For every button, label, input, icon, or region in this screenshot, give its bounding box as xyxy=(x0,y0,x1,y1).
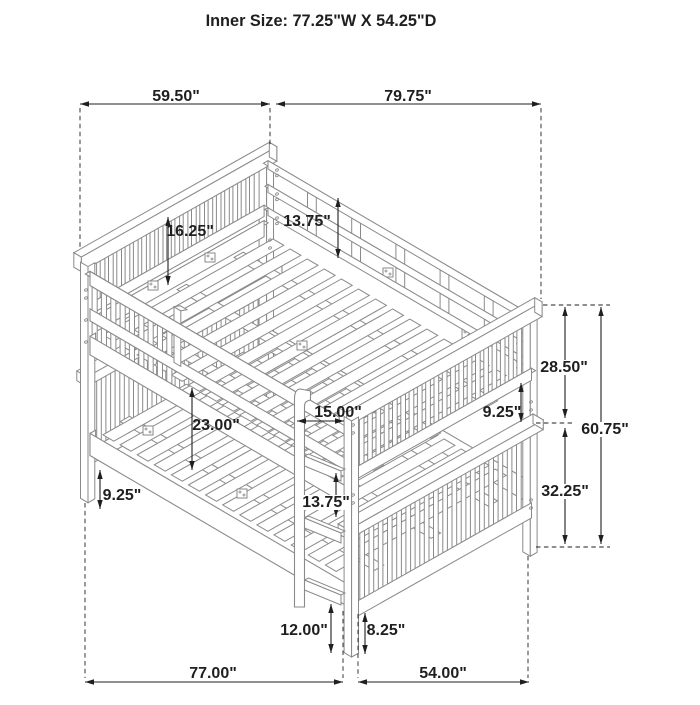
svg-text:12.00": 12.00" xyxy=(280,622,328,639)
svg-text:9.25": 9.25" xyxy=(103,487,142,504)
svg-text:28.50": 28.50" xyxy=(540,359,588,376)
svg-text:79.75": 79.75" xyxy=(384,88,432,105)
svg-text:13.75": 13.75" xyxy=(283,213,331,230)
svg-text:59.50": 59.50" xyxy=(152,88,200,105)
svg-text:8.25": 8.25" xyxy=(367,622,406,639)
svg-text:15.00": 15.00" xyxy=(314,404,362,421)
svg-text:13.75": 13.75" xyxy=(302,494,350,511)
svg-text:16.25": 16.25" xyxy=(166,223,214,240)
svg-text:9.25": 9.25" xyxy=(483,404,522,421)
svg-text:60.75": 60.75" xyxy=(581,421,629,438)
svg-text:Inner Size: 77.25"W X 54.25"D: Inner Size: 77.25"W X 54.25"D xyxy=(206,12,437,30)
svg-text:32.25": 32.25" xyxy=(541,483,589,500)
svg-text:54.00": 54.00" xyxy=(419,665,467,682)
svg-text:23.00": 23.00" xyxy=(192,417,240,434)
svg-text:77.00": 77.00" xyxy=(189,665,237,682)
